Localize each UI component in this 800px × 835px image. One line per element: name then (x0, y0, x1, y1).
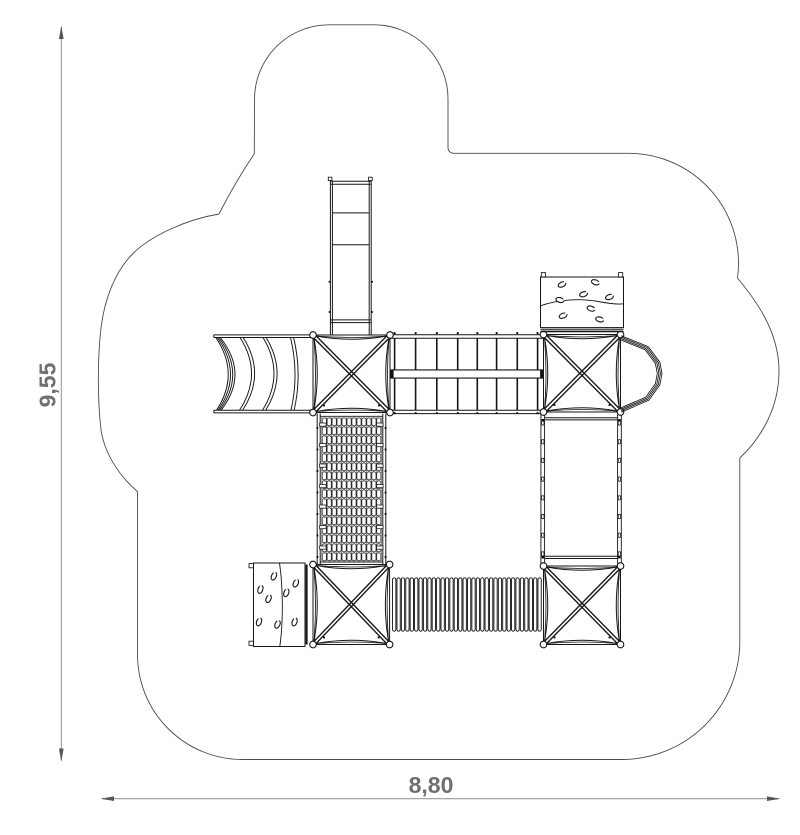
svg-text:8,80: 8,80 (409, 772, 454, 798)
svg-text:9,55: 9,55 (35, 362, 61, 407)
